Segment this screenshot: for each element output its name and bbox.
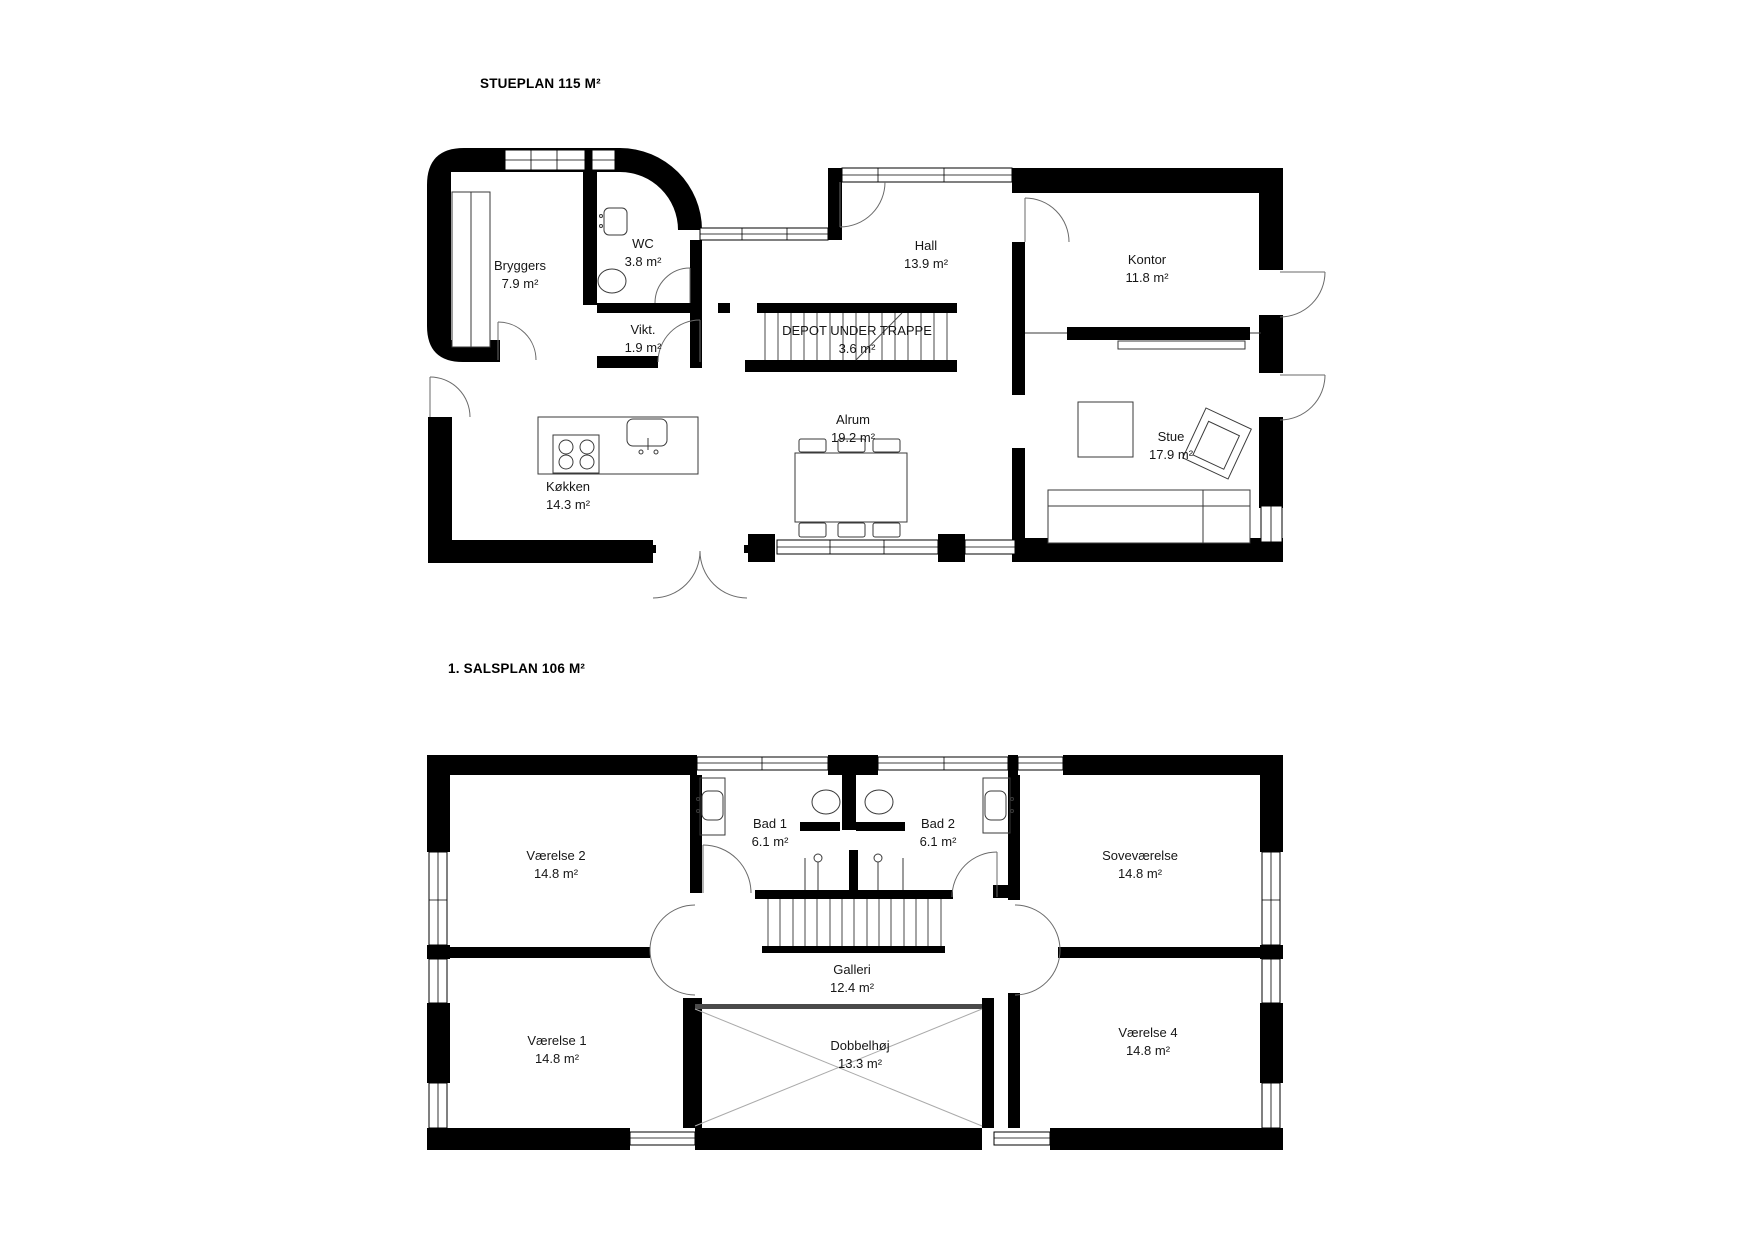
room-label-bad-1: Bad 1 6.1 m² xyxy=(752,815,789,851)
room-area: 1.9 m² xyxy=(625,339,662,357)
room-label-wc: WC 3.8 m² xyxy=(625,235,662,271)
room-name: Værelse 1 xyxy=(527,1032,586,1050)
room-name: Soveværelse xyxy=(1102,847,1178,865)
room-area: 14.8 m² xyxy=(1102,865,1178,883)
room-area: 19.2 m² xyxy=(831,429,875,447)
room-label-depot-under-trappe: DEPOT UNDER TRAPPE 3.6 m² xyxy=(782,322,932,358)
room-name: Kontor xyxy=(1125,251,1168,269)
room-area: 3.8 m² xyxy=(625,253,662,271)
room-label-bryggers: Bryggers 7.9 m² xyxy=(494,257,546,293)
wc-toilet xyxy=(598,269,626,293)
room-area: 13.9 m² xyxy=(904,255,948,273)
salsplan-drawing xyxy=(427,755,1283,1150)
room-label-vaerelse-2: Værelse 2 14.8 m² xyxy=(526,847,585,883)
room-name: WC xyxy=(625,235,662,253)
floorplan-canvas: STUEPLAN 115 M² 1. SALSPLAN 106 M² Brygg… xyxy=(0,0,1754,1240)
room-name: Dobbelhøj xyxy=(830,1037,889,1055)
room-label-alrum: Alrum 19.2 m² xyxy=(831,411,875,447)
room-area: 13.3 m² xyxy=(830,1055,889,1073)
coffee-table xyxy=(1078,402,1133,457)
room-name: Vikt. xyxy=(625,321,662,339)
room-name: Køkken xyxy=(546,478,590,496)
room-name: DEPOT UNDER TRAPPE xyxy=(782,322,932,340)
room-name: Hall xyxy=(904,237,948,255)
room-label-hall: Hall 13.9 m² xyxy=(904,237,948,273)
room-area: 14.8 m² xyxy=(526,865,585,883)
room-label-dobbelhoj: Dobbelhøj 13.3 m² xyxy=(830,1037,889,1073)
room-area: 6.1 m² xyxy=(920,833,957,851)
room-label-bad-2: Bad 2 6.1 m² xyxy=(920,815,957,851)
room-area: 3.6 m² xyxy=(782,340,932,358)
room-area: 6.1 m² xyxy=(752,833,789,851)
room-area: 12.4 m² xyxy=(830,979,874,997)
room-name: Værelse 4 xyxy=(1118,1024,1177,1042)
room-label-vikt: Vikt. 1.9 m² xyxy=(625,321,662,357)
room-label-stue: Stue 17.9 m² xyxy=(1149,428,1193,464)
sofa xyxy=(1048,490,1250,543)
room-area: 14.8 m² xyxy=(527,1050,586,1068)
room-label-sovevaerelse: Soveværelse 14.8 m² xyxy=(1102,847,1178,883)
room-label-vaerelse-4: Værelse 4 14.8 m² xyxy=(1118,1024,1177,1060)
room-name: Alrum xyxy=(831,411,875,429)
room-name: Værelse 2 xyxy=(526,847,585,865)
room-label-galleri: Galleri 12.4 m² xyxy=(830,961,874,997)
room-area: 11.8 m² xyxy=(1125,269,1168,287)
stueplan-drawing xyxy=(427,148,1325,598)
room-area: 17.9 m² xyxy=(1149,446,1193,464)
room-name: Bad 1 xyxy=(752,815,789,833)
wardrobe xyxy=(452,192,490,347)
room-name: Bad 2 xyxy=(920,815,957,833)
stueplan-title: STUEPLAN 115 M² xyxy=(480,76,601,91)
room-label-kokken: Køkken 14.3 m² xyxy=(546,478,590,514)
room-name: Bryggers xyxy=(494,257,546,275)
room-area: 7.9 m² xyxy=(494,275,546,293)
room-name: Galleri xyxy=(830,961,874,979)
room-label-vaerelse-1: Værelse 1 14.8 m² xyxy=(527,1032,586,1068)
dining-table xyxy=(795,439,907,537)
wc-sink xyxy=(600,208,628,235)
room-label-kontor: Kontor 11.8 m² xyxy=(1125,251,1168,287)
room-area: 14.3 m² xyxy=(546,496,590,514)
salsplan-title: 1. SALSPLAN 106 M² xyxy=(448,661,585,676)
room-area: 14.8 m² xyxy=(1118,1042,1177,1060)
room-name: Stue xyxy=(1149,428,1193,446)
kitchen-island xyxy=(538,417,698,474)
